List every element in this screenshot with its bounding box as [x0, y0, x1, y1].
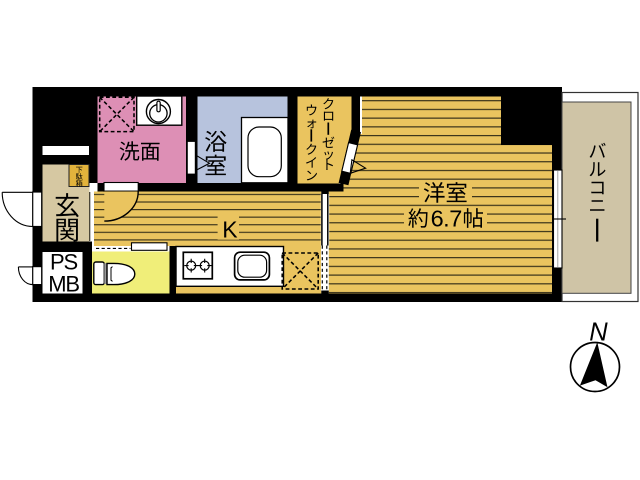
svg-text:MB: MB — [48, 271, 79, 296]
svg-text:N: N — [589, 319, 608, 347]
svg-text:6.7: 6.7 — [431, 206, 462, 232]
svg-text:K: K — [222, 217, 238, 243]
